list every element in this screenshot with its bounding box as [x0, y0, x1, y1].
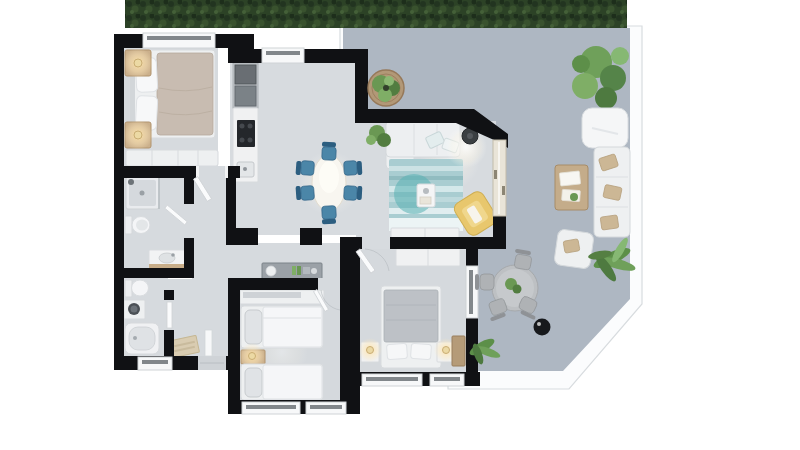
hall-sideboard-knob	[311, 268, 317, 274]
bathroom1-toilet-seat	[136, 220, 148, 231]
bedroom2-wardrobe-shelf	[243, 292, 301, 298]
terrace-coffee-table-sprig	[570, 193, 578, 201]
bedroom3-lamp-a	[367, 347, 374, 354]
terrace-rattan-plant-4	[384, 76, 394, 86]
bedroom1-duvet	[157, 53, 213, 135]
window-bedroom2-south-2-glass	[310, 405, 342, 409]
window-bedroom1-north	[143, 33, 215, 48]
bedroom2-bed-a-pillow	[245, 310, 262, 344]
bedroom1-lamp-b	[134, 131, 142, 139]
bathroom2-washer-door-inner	[131, 306, 138, 313]
door-jamb-bedroom1-a	[196, 166, 199, 178]
terrace-big-plant-3	[572, 73, 598, 99]
bedroom3-tall-unit	[452, 336, 465, 366]
bedroom1-lamp-a	[134, 59, 142, 67]
wall-hall-pillar-east	[300, 228, 322, 245]
terrace-chair-w-seat	[480, 274, 494, 290]
dining-chair-s-seat	[322, 206, 337, 220]
bathroom1-faucet	[171, 253, 175, 257]
living-coffee-table-decor	[423, 188, 429, 194]
dining-chair-e1-seat	[344, 161, 358, 176]
kitchen-stove	[237, 120, 255, 147]
terrace-rattan-plant-center	[383, 85, 389, 91]
floor-plan-stage	[0, 0, 800, 450]
terrace-table-plant-2	[513, 285, 522, 294]
terrace-armchair-pillow	[563, 239, 580, 253]
kitchen-fridge	[235, 65, 256, 84]
dining-chair-s-back	[322, 219, 336, 225]
kitchen-faucet	[243, 167, 247, 171]
terrace-coffee-table-paper-1	[559, 171, 580, 186]
dining-chair-n-back	[322, 142, 336, 147]
kitchen-burner-1	[240, 124, 245, 129]
hall-sideboard-bottle-2	[297, 266, 301, 275]
wall-bedroom2-3-divider	[340, 237, 360, 414]
hedge	[125, 0, 627, 28]
window-bedroom1-north-glass	[147, 36, 211, 40]
dining-chair-n-seat	[322, 147, 336, 160]
terrace-chair-n-seat	[514, 254, 532, 271]
scene-layers	[114, 0, 642, 414]
door-gap-bedroom2	[318, 278, 340, 290]
living-floorlamp-top	[467, 133, 473, 139]
dining-chair-e2-back	[357, 186, 363, 200]
terrace-big-planter	[582, 108, 628, 148]
door-gap-bedroom1	[198, 166, 226, 178]
wall-bath-divider	[114, 268, 194, 278]
window-entry-south-glass	[142, 360, 168, 364]
floor-plan-scene	[0, 0, 800, 450]
dining-chair-w1-seat	[301, 161, 315, 176]
hall-sideboard-box	[303, 267, 310, 274]
window-kitchen-north-glass	[266, 51, 300, 55]
terrace-big-plant-4	[595, 87, 617, 109]
kitchen-burner-2	[248, 124, 253, 129]
kitchen-burner-4	[248, 138, 253, 143]
terrace-big-plant-2	[600, 65, 626, 91]
window-bedroom3-south-2-glass	[434, 377, 460, 381]
dining-chair-e2-seat	[344, 186, 358, 201]
bedroom2-lamp	[249, 353, 256, 360]
wall-bedroom2-west	[228, 278, 240, 414]
bathroom2-toilet-tank	[125, 280, 132, 297]
wall-hall-pillar-west	[226, 228, 258, 245]
wall-bedroom2-north	[232, 278, 318, 290]
terrace-bollard-highlight	[537, 322, 541, 326]
bedroom1-bench	[126, 150, 218, 166]
window-bedroom2-south-1-glass	[246, 405, 296, 409]
bedroom3-pillow-a	[387, 343, 408, 359]
dining-chair-w2-seat	[301, 186, 315, 201]
living-plant-leaf-2	[377, 133, 391, 147]
hall-sideboard-bottle-1	[292, 266, 296, 275]
window-kitchen-north	[262, 48, 304, 63]
door-leaf-bathroom2	[167, 302, 172, 328]
bathroom2-bathtub-drain	[133, 336, 137, 340]
bedroom3-duvet	[384, 290, 438, 342]
sliding-door-handle-2	[502, 186, 505, 195]
bedroom3-pillow-b	[411, 343, 432, 359]
window-bedroom3-east-glass	[469, 270, 473, 314]
living-coffee-table-book	[420, 197, 431, 204]
terrace-sofa-pillow-3	[600, 215, 619, 230]
bathroom2-toilet-bowl	[132, 280, 149, 296]
door-jamb-bedroom1-b	[225, 166, 228, 178]
window-bedroom3-south-1-glass	[366, 377, 418, 381]
dining-table-highlight	[319, 161, 339, 193]
wall-top-living	[355, 109, 459, 123]
sliding-door-handle-1	[494, 170, 497, 179]
living-plant-leaf-3	[366, 135, 376, 145]
bathroom2-bathtub-inner	[129, 327, 155, 350]
door-gap-bedroom3	[362, 237, 390, 249]
bathroom1-shower-head	[128, 179, 134, 185]
entrance-door-leaf	[205, 330, 212, 356]
bedroom2-bed-a-duvet	[263, 307, 322, 347]
terrace-big-plant-5	[611, 47, 629, 65]
bathroom1-toilet-tank	[125, 216, 132, 234]
kitchen-cabinet	[235, 86, 256, 106]
hall-sideboard-plate	[266, 266, 276, 276]
kitchen-burner-3	[240, 138, 245, 143]
floor-corridor	[192, 176, 228, 246]
terrace-bollard-lamp	[534, 319, 551, 336]
bedroom2-bed-b-duvet	[263, 365, 322, 399]
terrace-big-plant-6	[572, 55, 590, 73]
bathroom1-shower-drain	[140, 191, 145, 196]
bedroom2-bed-b-pillow	[245, 368, 262, 397]
bedroom3-lamp-b	[443, 347, 450, 354]
terrace-chair-w-back	[475, 274, 479, 290]
living-rug-stripe-1	[389, 166, 463, 171]
dining-chair-e1-back	[357, 161, 363, 175]
wall-outer-left	[114, 34, 124, 370]
